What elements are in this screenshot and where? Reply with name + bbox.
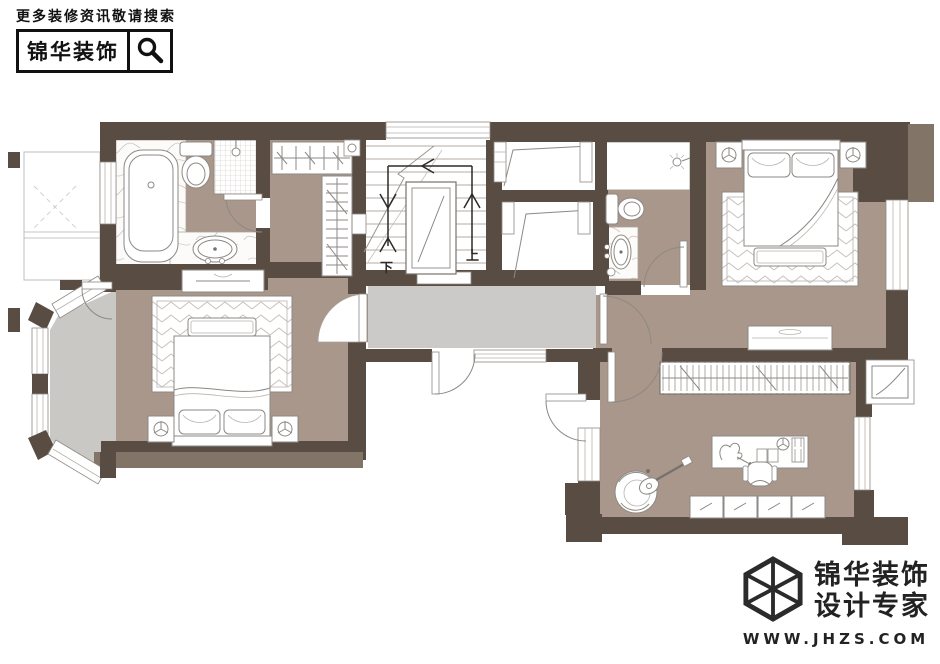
footer-logo: 锦华装饰 设计专家 WWW.JHZS.COM [742,556,930,648]
dresser [182,270,264,292]
stairwell-top-window [386,122,490,138]
stair-center-void [406,182,456,274]
wall-niche [352,214,366,234]
floor-plan-page: 更多装修资讯敬请搜索 锦华装饰 [0,0,940,664]
stair-up-label: 上 [466,249,479,264]
nightstand [272,416,298,442]
footer-website: WWW.JHZS.COM [742,630,930,648]
doorway-floor [612,348,662,362]
double-bed [742,140,840,246]
ac-platform [866,360,914,404]
cube-wireframe-icon [742,556,804,626]
bench [188,318,256,336]
bathroom-west-window [100,162,116,224]
study-east-window [854,417,870,490]
study-west-window [578,428,600,481]
closet-hanging-rail-top [272,140,360,174]
footer-brand: 锦华装饰 [814,560,930,591]
nightstand [840,142,866,168]
hall-terrace-door [432,352,475,394]
stair-down-label: 下 [380,261,393,276]
hall-window [474,350,546,362]
toilet [180,142,212,188]
closet-hanging-rail-side [322,176,352,276]
double-bed [172,336,272,446]
terrace-left [24,152,100,280]
bedroom-left-furniture [148,270,298,446]
wardrobe-hanging-rail [660,362,850,394]
bench [754,248,826,266]
nightstand [148,416,174,442]
bedroom-right-window [886,200,908,290]
bathtub [124,150,178,262]
footer-subtitle: 设计专家 [814,591,930,622]
cabinet-row [690,496,825,518]
nightstand [716,142,742,168]
hallway-floor [368,286,596,348]
dresser [748,326,832,350]
